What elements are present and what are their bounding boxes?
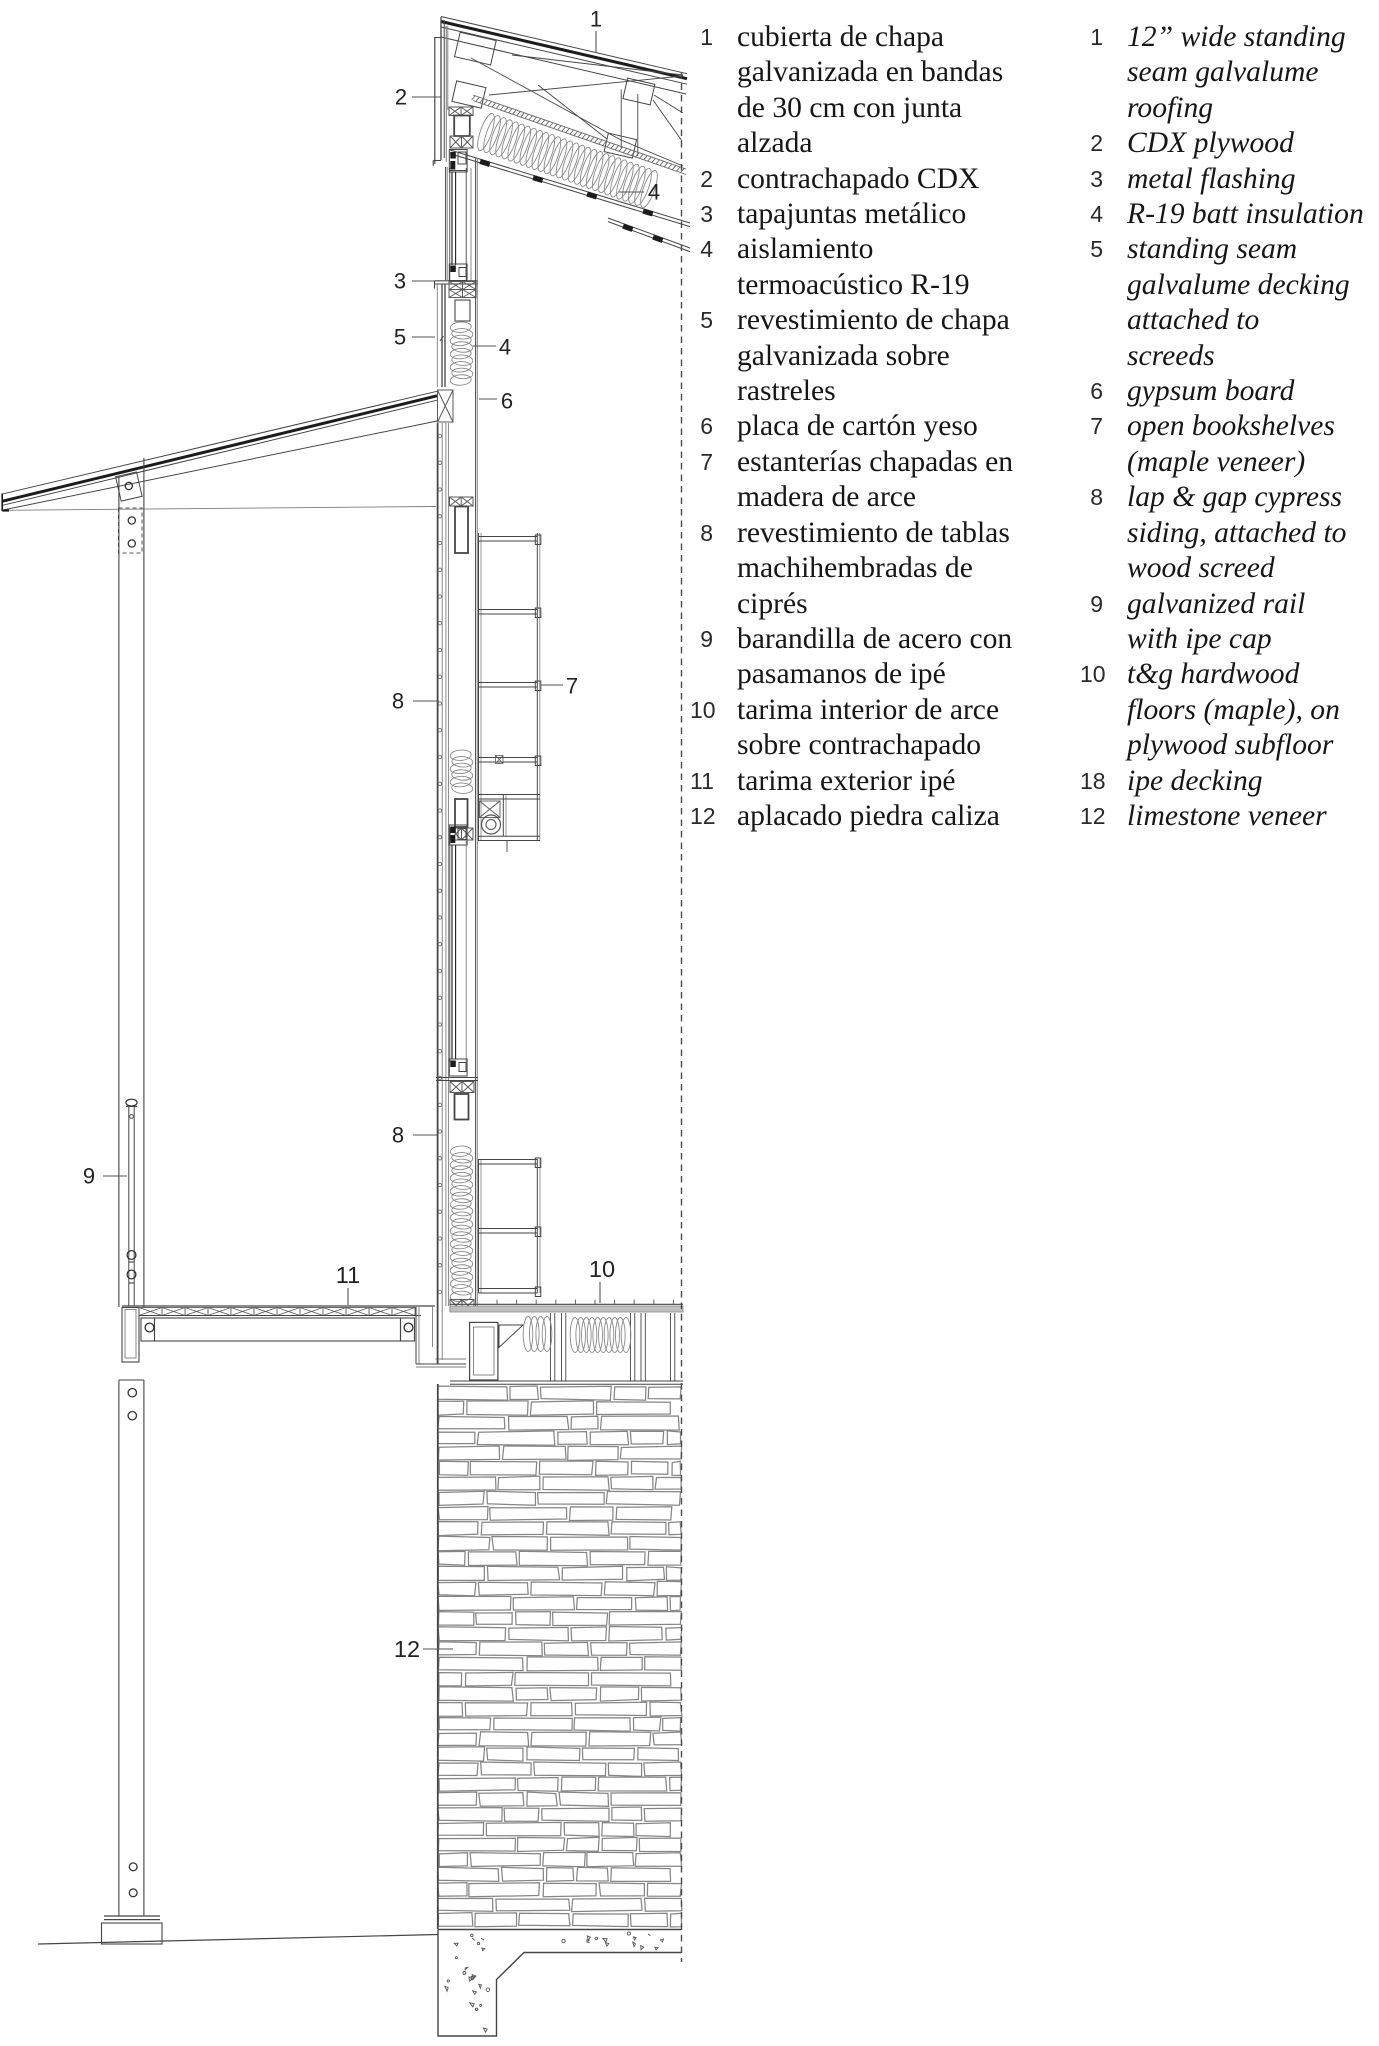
svg-text:3: 3	[394, 269, 406, 294]
svg-text:12: 12	[394, 1636, 420, 1662]
svg-text:11: 11	[336, 1262, 360, 1288]
svg-text:2: 2	[395, 85, 407, 110]
svg-text:7: 7	[566, 674, 578, 699]
svg-text:10: 10	[589, 1256, 615, 1282]
svg-text:1: 1	[590, 7, 602, 32]
svg-text:6: 6	[501, 389, 513, 414]
svg-text:4: 4	[499, 335, 511, 360]
svg-text:8: 8	[392, 689, 404, 714]
svg-text:4: 4	[648, 180, 660, 205]
svg-text:8: 8	[392, 1123, 404, 1148]
svg-text:5: 5	[394, 325, 406, 350]
svg-text:9: 9	[83, 1164, 95, 1189]
